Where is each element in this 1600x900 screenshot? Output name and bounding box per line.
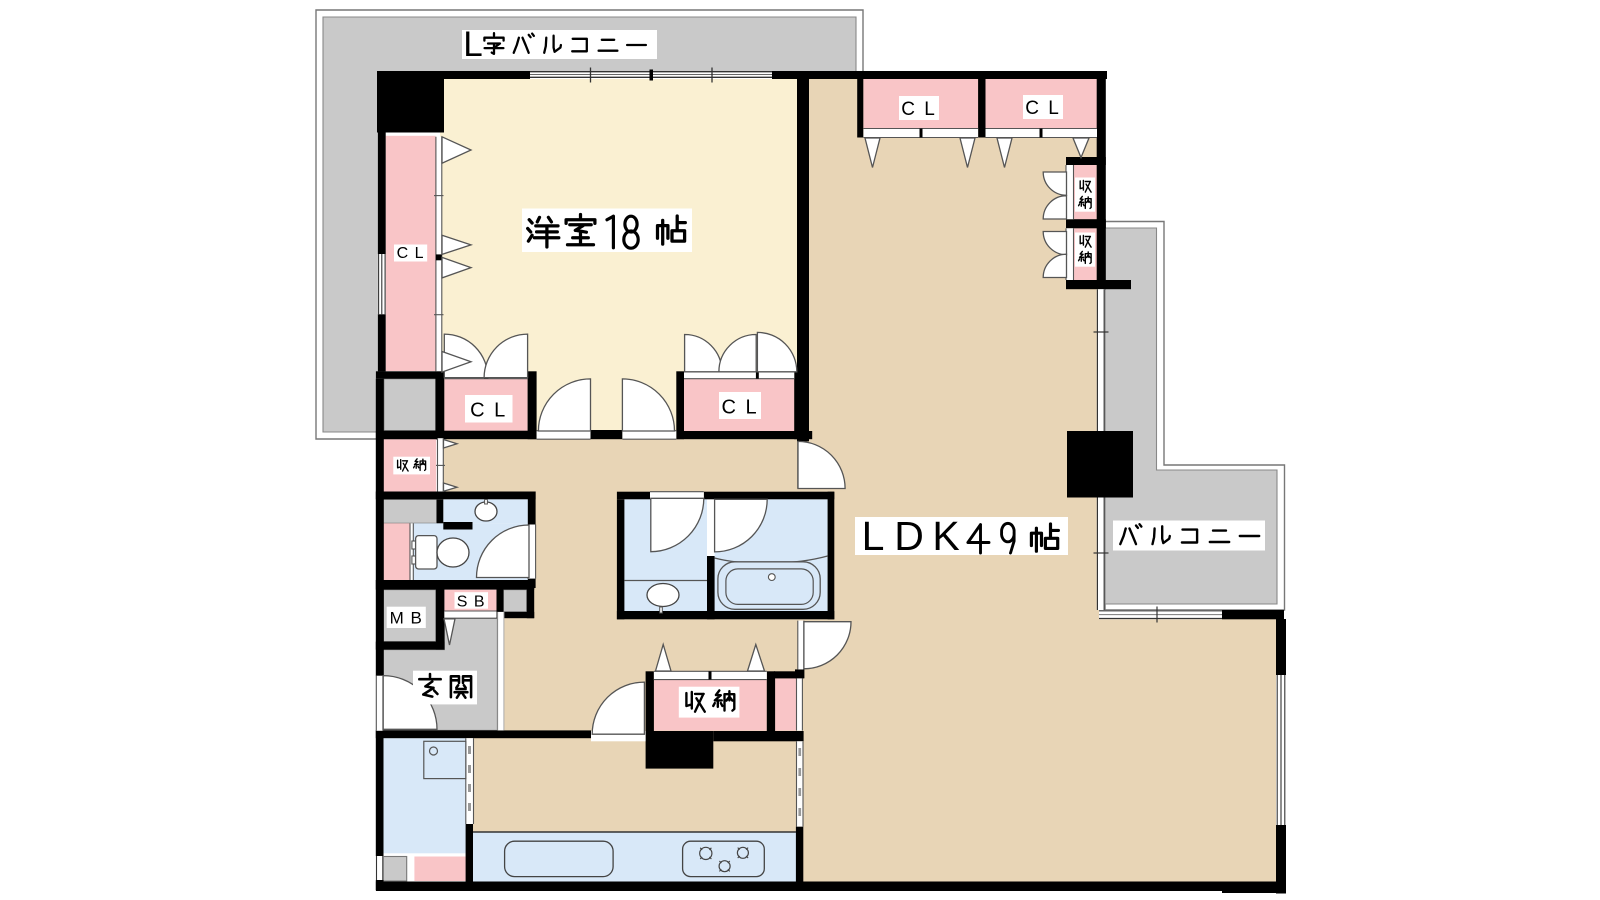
svg-text:C L: C L <box>721 397 758 419</box>
svg-text:K: K <box>932 513 959 559</box>
svg-text:D: D <box>894 513 924 559</box>
svg-text:C L: C L <box>1025 98 1061 119</box>
svg-text:L: L <box>862 513 885 559</box>
svg-text:C L: C L <box>901 99 937 120</box>
svg-text:L: L <box>463 25 482 64</box>
svg-text:S B: S B <box>457 594 486 611</box>
svg-text:C L: C L <box>470 400 507 422</box>
svg-text:C L: C L <box>397 245 425 262</box>
svg-text:M B: M B <box>390 609 423 628</box>
